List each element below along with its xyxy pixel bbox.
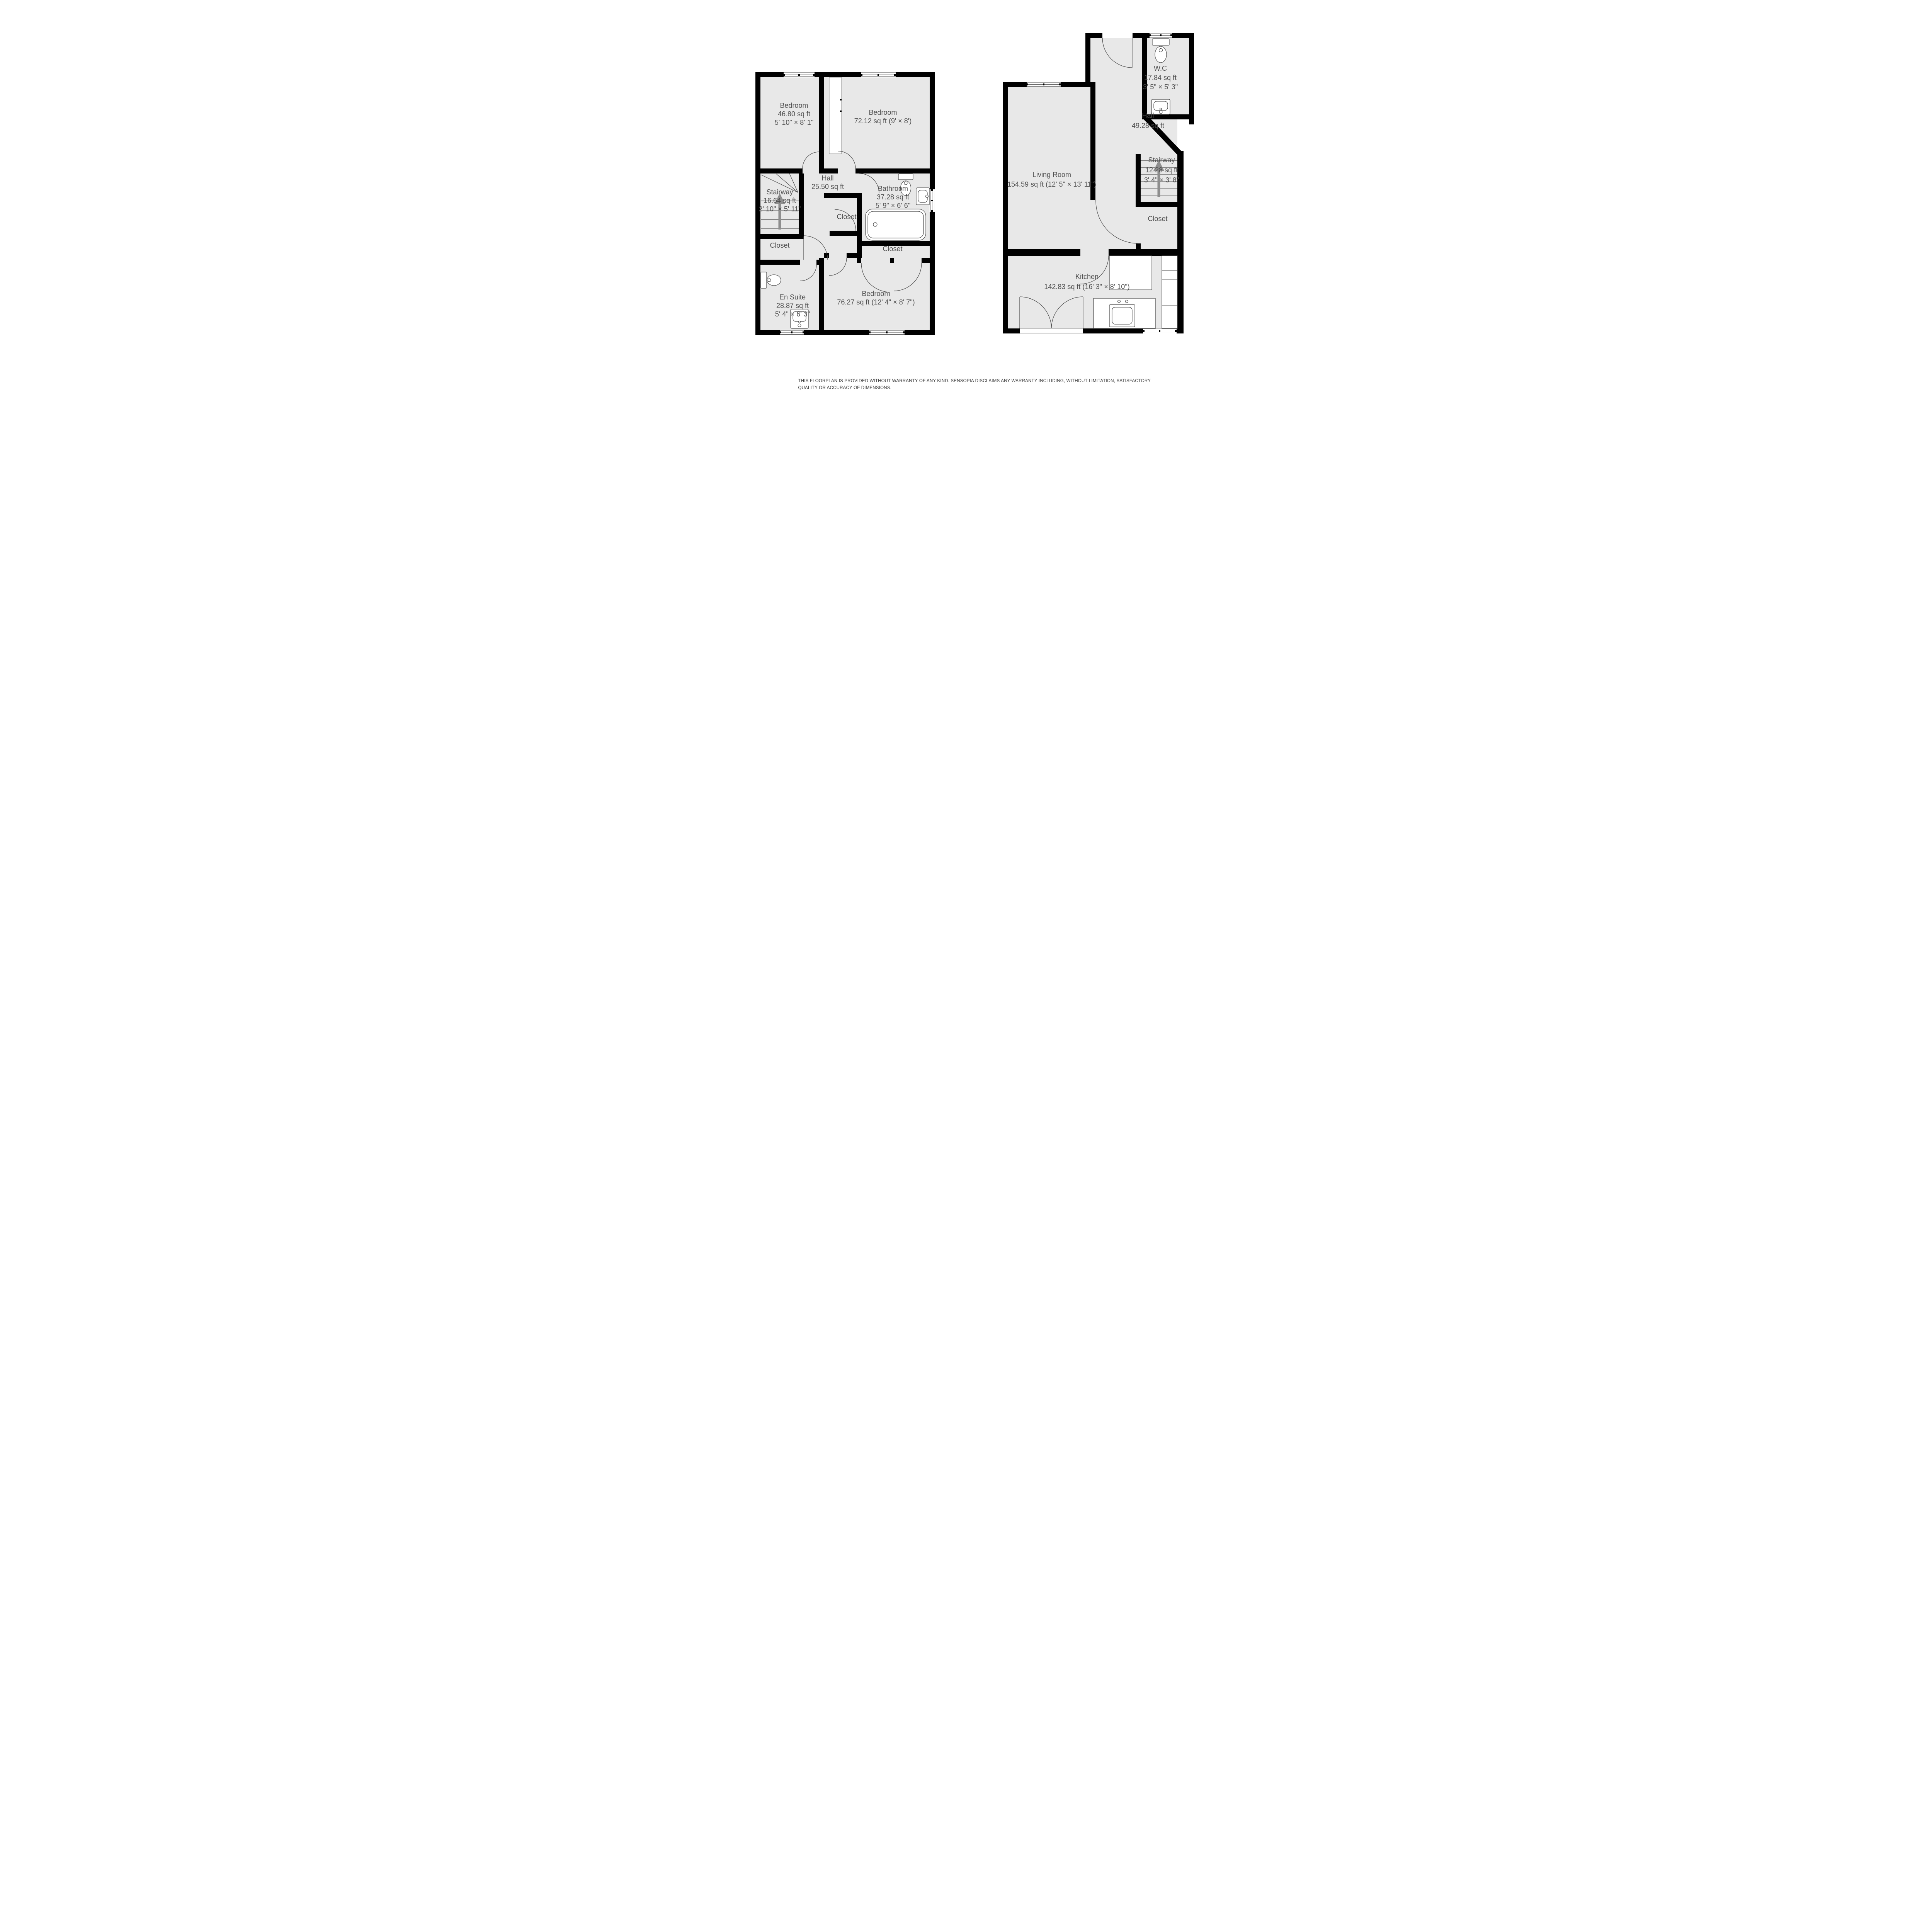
room-name-label: Kitchen — [1075, 273, 1098, 281]
room-dims-label: 3' 4" × 3' 8" — [1144, 176, 1179, 184]
room-name-label: En Suite — [779, 293, 805, 301]
disclaimer-text: THIS FLOORPLAN IS PROVIDED WITHOUT WARRA… — [798, 378, 1166, 392]
room-area-label: 16.64 sq ft — [763, 197, 796, 204]
room-area-label: 142.83 sq ft (16' 3" × 8' 10") — [1044, 283, 1129, 291]
room-area-label: 154.59 sq ft (12' 5" × 13' 11") — [1007, 180, 1096, 188]
bathtub-icon — [866, 209, 926, 240]
room-dims-label: 3' 5" × 5' 3" — [1143, 83, 1177, 91]
sink-icon — [916, 188, 930, 205]
room-dims-label: 2' 10" × 5' 11" — [759, 205, 801, 213]
room-name-label: Closet — [883, 245, 902, 253]
ground-floor-plan: W.C 17.84 sq ft 3' 5" × 5' 3" Hall 49.28… — [1003, 32, 1194, 334]
room-area-label: 76.27 sq ft (12' 4" × 8' 7") — [837, 298, 915, 306]
room-name-label: Bedroom — [869, 109, 897, 116]
window-icon — [1027, 82, 1061, 87]
floorplan-page: Bedroom 46.80 sq ft 5' 10" × 8' 1" Bedro… — [701, 0, 1232, 424]
window-icon — [780, 330, 804, 335]
window-icon — [1143, 328, 1177, 334]
room-dims-label: 5' 10" × 8' 1" — [774, 119, 813, 126]
room-area-label: 17.84 sq ft — [1144, 74, 1176, 82]
room-name-label: Bedroom — [862, 290, 890, 298]
room-name-label: Closet — [770, 241, 789, 249]
window-icon — [784, 72, 815, 78]
sink-icon — [1151, 99, 1170, 114]
room-name-label: Stairway — [1148, 156, 1175, 164]
room-dims-label: 5' 4" × 6' 3" — [775, 310, 810, 318]
room-name-label: Closet — [1148, 215, 1167, 223]
room-name-label: Bathroom — [878, 185, 908, 192]
room-name-label: Bedroom — [780, 102, 808, 109]
window-icon — [929, 189, 935, 212]
entry-door-opening — [1102, 32, 1133, 38]
room-name-label: Hall — [1142, 112, 1154, 119]
room-area-label: 28.87 sq ft — [776, 302, 808, 310]
room-name-label: Closet — [837, 213, 856, 221]
window-icon — [869, 330, 905, 335]
kitchen-sink-icon — [1094, 298, 1155, 328]
kitchen-counter — [1162, 256, 1177, 328]
room-area-label: 72.12 sq ft (9' × 8') — [854, 117, 911, 125]
room-name-label: Hall — [821, 174, 833, 182]
room-name-label: Living Room — [1032, 171, 1071, 179]
built-in-cupboard — [829, 77, 842, 154]
room-dims-label: 5' 9" × 6' 6" — [875, 202, 910, 209]
room-area-label: 46.80 sq ft — [777, 110, 810, 118]
floorplan-canvas: Bedroom 46.80 sq ft 5' 10" × 8' 1" Bedro… — [701, 0, 1232, 424]
room-area-label: 25.50 sq ft — [811, 183, 844, 190]
window-icon — [1150, 33, 1172, 38]
window-icon — [861, 72, 896, 78]
room-area-label: 12.28 sq ft — [1145, 166, 1177, 174]
upper-floor-plan: Bedroom 46.80 sq ft 5' 10" × 8' 1" Bedro… — [755, 72, 935, 335]
room-area-label: 37.28 sq ft — [876, 193, 909, 201]
room-area-label: 49.28 sq ft — [1131, 122, 1164, 129]
room-name-label: Stairway — [766, 188, 793, 196]
room-name-label: W.C — [1154, 65, 1167, 72]
